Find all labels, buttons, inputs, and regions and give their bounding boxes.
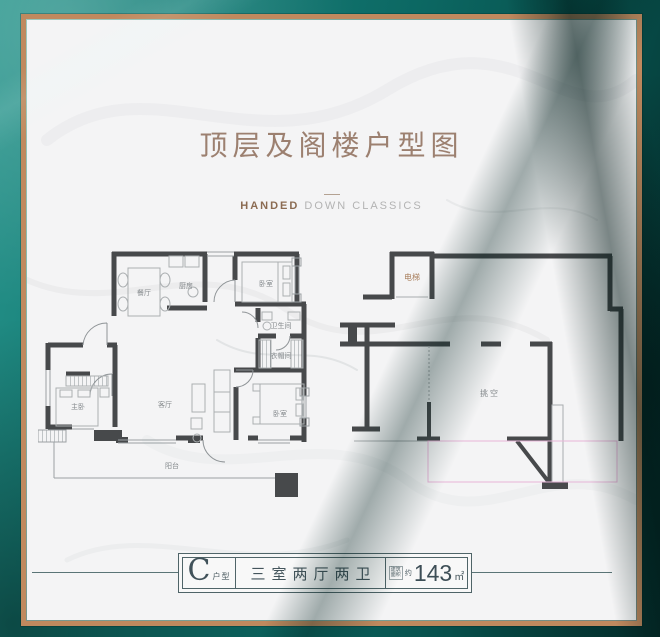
unit-type-cell: C 户型 (183, 558, 236, 588)
unit-layout-cell: 三室两厅两卫 (236, 558, 386, 588)
room-label-bedroom-right: 卧室 (273, 409, 287, 418)
divider-line-right (472, 572, 612, 573)
room-label-kitchen: 厨房 (179, 281, 193, 290)
attic-walls (340, 252, 623, 485)
main-walls (48, 252, 306, 442)
main-furniture (56, 256, 304, 442)
room-label-dining: 餐厅 (137, 288, 151, 297)
room-label-void: 挑空 (480, 388, 500, 398)
subtitle-rest: DOWN CLASSICS (299, 200, 422, 212)
attic-floor-plan: 电梯 挑空 (340, 245, 640, 495)
room-label-living: 客厅 (158, 400, 172, 409)
page-title: 顶层及阁楼户型图 (27, 124, 636, 164)
poster-background: 顶层及阁楼户型图 HANDED DOWN CLASSICS (0, 0, 660, 637)
unit-layout-text: 三室两厅两卫 (250, 563, 376, 584)
area-approx: 约 (405, 568, 412, 578)
marble-card: 顶层及阁楼户型图 HANDED DOWN CLASSICS (27, 20, 636, 620)
attic-wall-blocks (348, 327, 568, 489)
main-room-labels: 餐厅 厨房 卧室 卫生间 衣帽间 主卧 客厅 卧室 阳台 (71, 279, 292, 470)
marble-veins (27, 20, 636, 620)
attic-stair-lines (429, 402, 551, 485)
room-label-elevator: 电梯 (404, 272, 420, 282)
main-doors (83, 280, 290, 462)
room-label-bedroom-top: 卧室 (259, 279, 273, 288)
unit-type-letter: C (188, 557, 211, 585)
unit-info-inner: C 户型 三室两厅两卫 建筑 面积 约 143 ㎡ (182, 557, 468, 589)
room-label-cloakroom: 衣帽间 (271, 351, 292, 360)
subtitle: HANDED DOWN CLASSICS (27, 200, 636, 212)
attic-thin-lines (354, 297, 563, 482)
room-label-balcony: 阳台 (165, 461, 179, 470)
area-label: 建筑 面积 (389, 566, 403, 580)
main-windows (46, 252, 309, 478)
room-label-bathroom: 卫生间 (271, 321, 292, 330)
area-unit: ㎡ (454, 568, 464, 588)
room-label-master-bedroom: 主卧 (71, 402, 85, 411)
copper-frame (21, 14, 642, 626)
area-label-line1: 建筑 (391, 568, 401, 573)
area-label-line2: 面积 (391, 573, 401, 578)
subtitle-bold: HANDED (240, 200, 299, 212)
unit-info-bar: C 户型 三室两厅两卫 建筑 面积 约 143 ㎡ (178, 553, 472, 593)
main-floor-plan: 餐厅 厨房 卧室 卫生间 衣帽间 主卧 客厅 卧室 阳台 (38, 246, 330, 508)
terrace-pink-outline (428, 441, 617, 482)
planter-hatch (38, 430, 66, 442)
unit-area-cell: 建筑 面积 约 143 ㎡ (386, 558, 467, 588)
main-wall-blocks (94, 430, 298, 497)
area-value: 143 (414, 562, 452, 585)
ornament-line (324, 194, 340, 195)
divider-line-left (32, 572, 178, 573)
unit-type-label: 户型 (212, 571, 230, 585)
